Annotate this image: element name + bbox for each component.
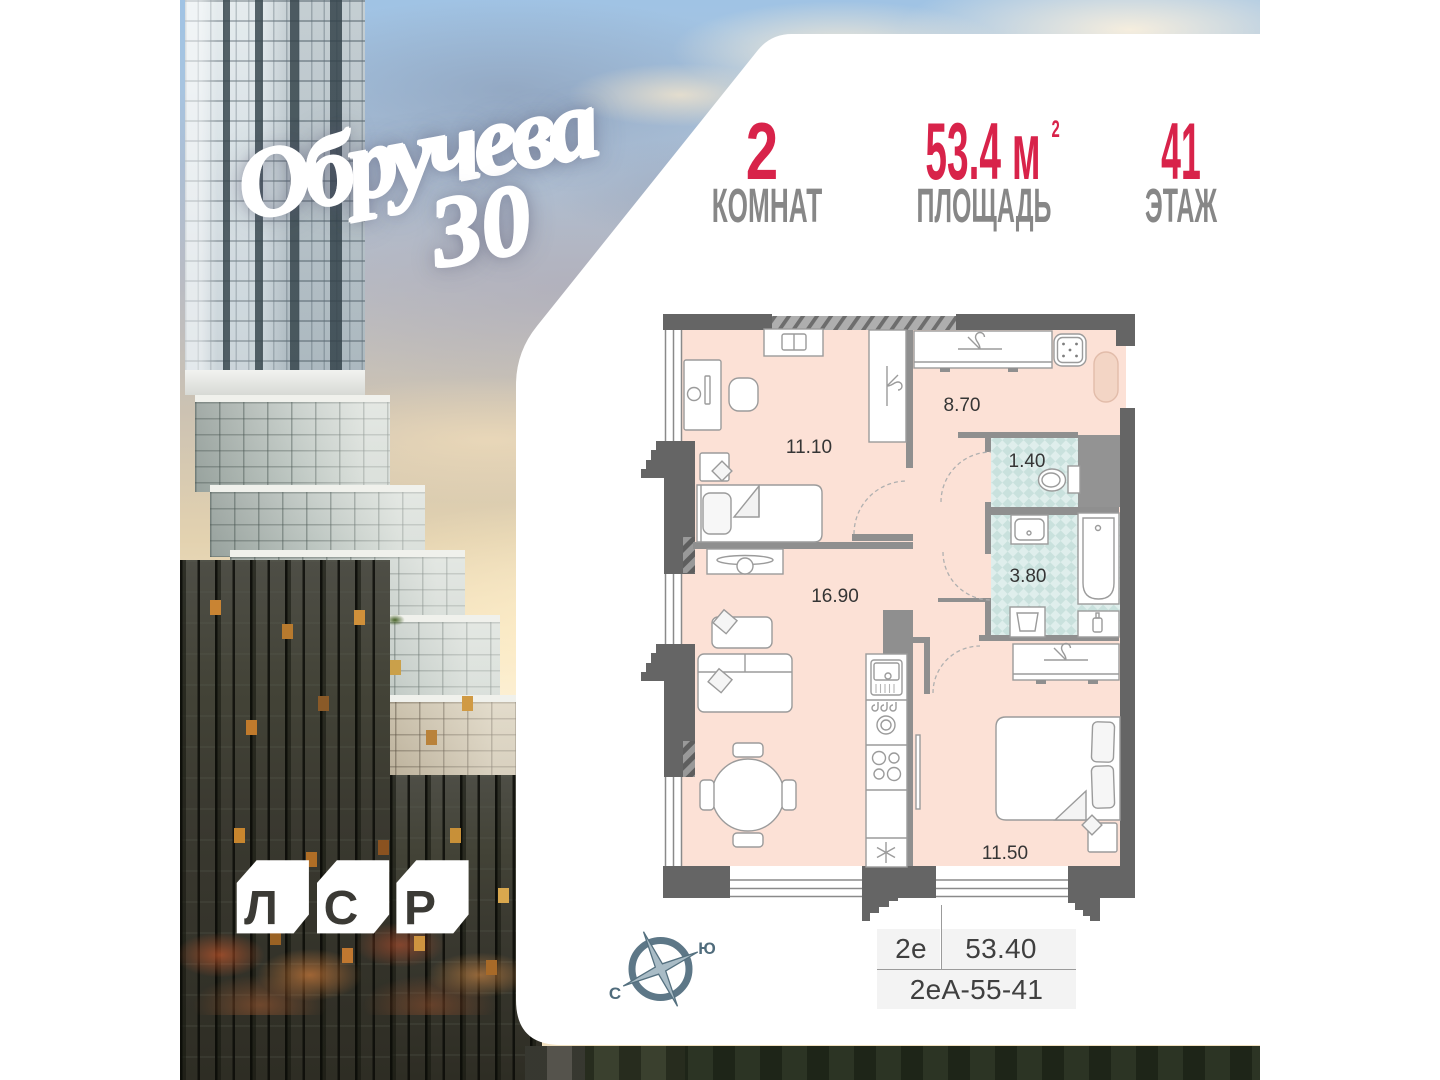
svg-text:3.80: 3.80 (1010, 566, 1047, 587)
svg-text:11.10: 11.10 (786, 437, 832, 458)
svg-text:11.50: 11.50 (982, 843, 1028, 864)
svg-text:Ю: Ю (698, 939, 716, 958)
svg-text:1.40: 1.40 (1009, 451, 1046, 472)
svg-text:16.90: 16.90 (811, 586, 859, 607)
svg-text:8.70: 8.70 (944, 395, 981, 416)
svg-text:С: С (609, 984, 621, 1003)
